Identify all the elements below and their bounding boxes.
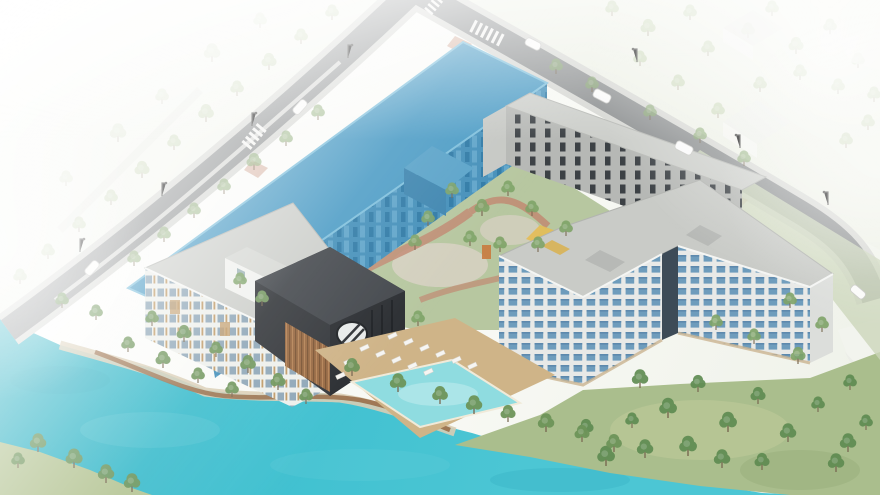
haze-left [0, 0, 880, 495]
architectural-rendering [0, 0, 880, 495]
rendering-canvas [0, 0, 880, 495]
edge-haze [0, 0, 880, 495]
